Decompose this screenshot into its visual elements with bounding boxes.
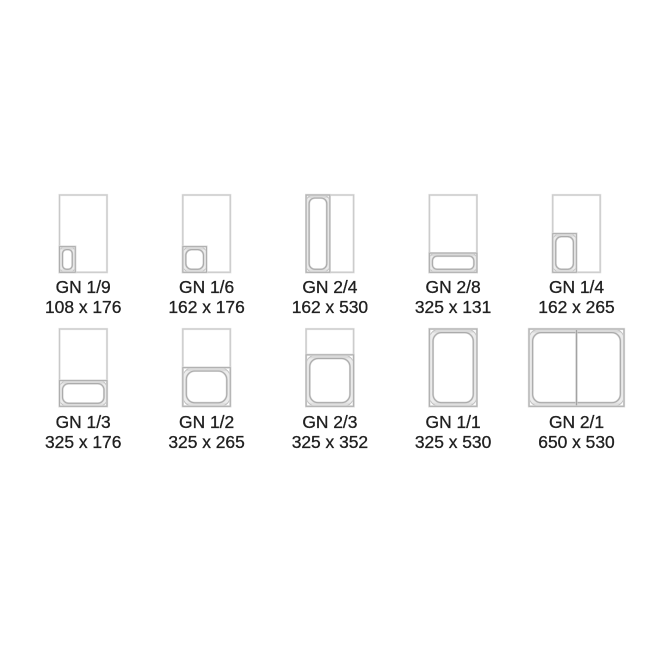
- svg-text:162 x 265: 162 x 265: [538, 297, 614, 317]
- svg-text:108 x 176: 108 x 176: [45, 297, 121, 317]
- svg-text:650 x 530: 650 x 530: [538, 432, 614, 452]
- svg-text:GN 2/4: GN 2/4: [302, 277, 357, 297]
- svg-text:325 x 352: 325 x 352: [292, 432, 368, 452]
- svg-text:GN 2/1: GN 2/1: [549, 412, 604, 432]
- svg-text:GN 1/1: GN 1/1: [426, 412, 481, 432]
- svg-text:325 x 265: 325 x 265: [168, 432, 244, 452]
- svg-text:GN 1/6: GN 1/6: [179, 277, 234, 297]
- svg-text:325 x 131: 325 x 131: [415, 297, 491, 317]
- svg-text:GN 2/8: GN 2/8: [426, 277, 481, 297]
- svg-text:GN 1/3: GN 1/3: [56, 412, 111, 432]
- svg-text:162 x 530: 162 x 530: [292, 297, 368, 317]
- svg-text:325 x 176: 325 x 176: [45, 432, 121, 452]
- svg-text:GN 1/4: GN 1/4: [549, 277, 604, 297]
- svg-text:GN 1/2: GN 1/2: [179, 412, 234, 432]
- svg-text:GN 2/3: GN 2/3: [302, 412, 357, 432]
- svg-text:325 x 530: 325 x 530: [415, 432, 491, 452]
- svg-text:162 x 176: 162 x 176: [168, 297, 244, 317]
- svg-text:GN 1/9: GN 1/9: [56, 277, 111, 297]
